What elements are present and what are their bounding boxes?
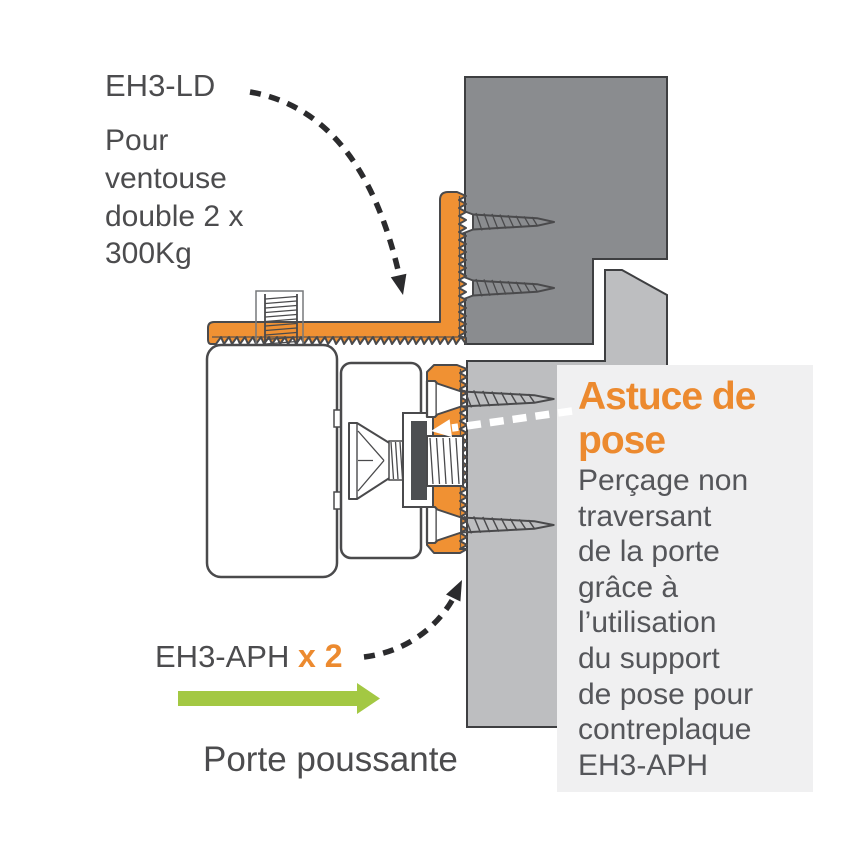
callout-body-line: traversant — [578, 500, 712, 533]
callout-body-line: Perçage non — [578, 464, 748, 497]
callout-body-line: grâce à — [578, 571, 678, 604]
support-quantity-label: x 2 — [298, 638, 342, 674]
callout-body-line: du support — [578, 642, 720, 675]
eh3-ld-bracket-shape — [208, 192, 466, 344]
curved-dashed-arrow-icon — [364, 580, 462, 657]
green-direction-arrow-icon — [178, 683, 380, 714]
spacer-washer — [411, 421, 427, 500]
callout-body-line: l’utilisation — [578, 606, 716, 639]
diagram-canvas: EH3-LD Pour ventouse double 2 x 300Kg EH… — [0, 0, 844, 844]
support-product-label: EH3-APH — [155, 639, 289, 674]
curved-dashed-arrow-icon — [250, 92, 406, 295]
door-direction-label: Porte poussante — [203, 740, 458, 779]
bracket-description-line: double 2 x — [105, 200, 243, 233]
callout-body-line: de la porte — [578, 535, 720, 568]
magnet-body-shape — [207, 345, 337, 577]
bracket-serration-baseline — [212, 196, 462, 337]
callout-body-line: de pose pour — [578, 678, 753, 711]
bracket-description-line: Pour — [105, 124, 168, 157]
callout-heading-line: Astuce de — [578, 375, 756, 418]
bracket-description-line: 300Kg — [105, 237, 192, 270]
callout-body-line: EH3-APH — [578, 749, 708, 782]
bracket-description-line: ventouse — [105, 162, 227, 195]
installation-diagram: EH3-LD Pour ventouse double 2 x 300Kg EH… — [0, 0, 844, 844]
bracket-product-label: EH3-LD — [105, 68, 215, 103]
callout-heading-line: pose — [578, 419, 665, 462]
callout-body-line: contreplaque — [578, 713, 751, 746]
